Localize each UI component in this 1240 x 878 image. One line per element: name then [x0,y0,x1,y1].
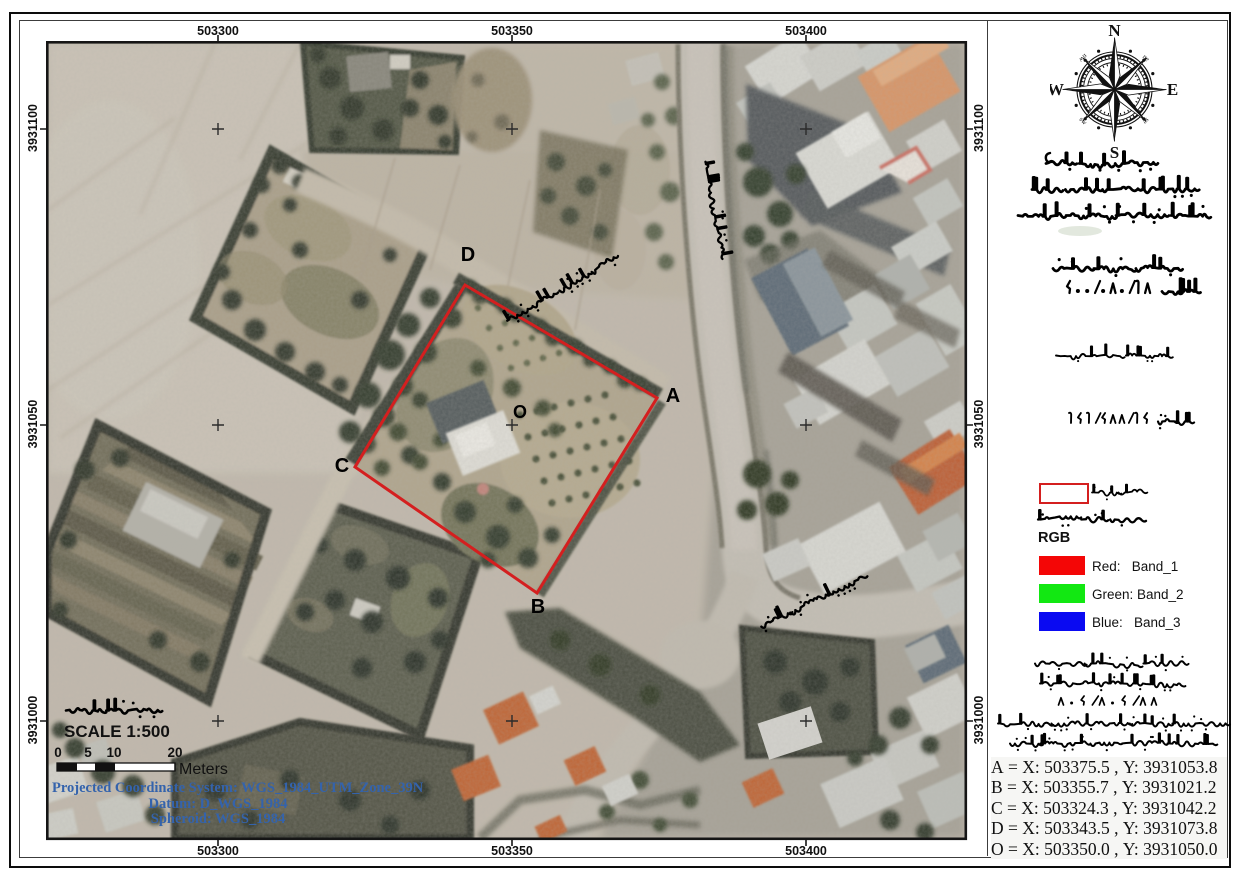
svg-text:Spheroid: WGS_1984: Spheroid: WGS_1984 [151,811,285,827]
svg-text:O: O [513,402,527,422]
svg-text:N: N [1108,21,1121,40]
svg-text:E: E [1167,80,1178,99]
svg-text:W: W [1050,80,1064,99]
svg-text:C: C [335,455,349,477]
svg-text:20: 20 [167,745,182,760]
svg-text:10: 10 [106,745,121,760]
svg-text:B: B [531,596,545,618]
svg-text:A: A [666,385,680,407]
svg-text:Datum: D_WGS_1984: Datum: D_WGS_1984 [149,796,288,812]
svg-text:5: 5 [84,745,92,760]
svg-text:SCALE 1:500: SCALE 1:500 [64,722,170,741]
svg-text:D: D [461,244,475,266]
svg-text:Meters: Meters [179,761,228,778]
svg-text:0: 0 [54,745,62,760]
svg-text:Projected Coordinate System: W: Projected Coordinate System: WGS_1984_UT… [52,780,424,796]
